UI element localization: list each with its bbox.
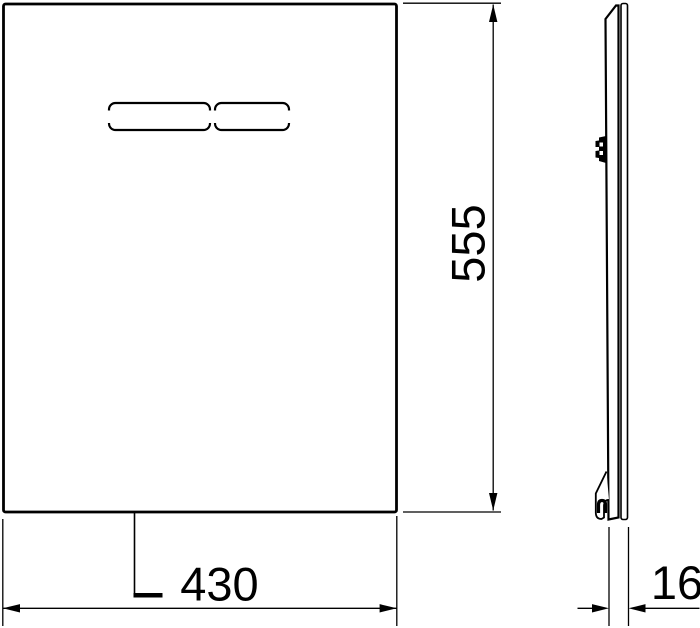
drawing-lines: 430 555 16: [3, 3, 700, 626]
arrowhead-left: [3, 604, 20, 612]
mounting-hook: [596, 472, 609, 520]
drawing-canvas: 430 555 16: [0, 0, 700, 628]
side-view: [596, 4, 628, 520]
button-edge-gap: [106, 111, 113, 124]
arrowhead-right: [380, 604, 397, 612]
arrowhead-up: [489, 5, 497, 23]
panel-side-rail: [621, 4, 628, 520]
cable-connector: [134, 513, 163, 598]
button-edge-gap: [286, 111, 293, 124]
dimension-height: 555: [403, 3, 501, 512]
dimension-depth: 16: [578, 527, 700, 626]
mounting-clip: [596, 136, 607, 163]
arrowhead-left: [629, 604, 646, 612]
arrowhead-right: [592, 604, 609, 612]
dimension-width: 430: [3, 516, 397, 626]
arrowhead-down: [489, 493, 497, 511]
button-edge-gap: [212, 111, 219, 124]
panel-front-outline: [4, 4, 397, 512]
front-view: [4, 4, 397, 598]
dimension-label-depth: 16: [651, 556, 700, 609]
dimension-label-width: 430: [180, 558, 258, 611]
dimension-label-height: 555: [442, 204, 495, 282]
technical-drawing: 430 555 16: [0, 0, 700, 628]
panel-side-profile: [606, 6, 619, 520]
